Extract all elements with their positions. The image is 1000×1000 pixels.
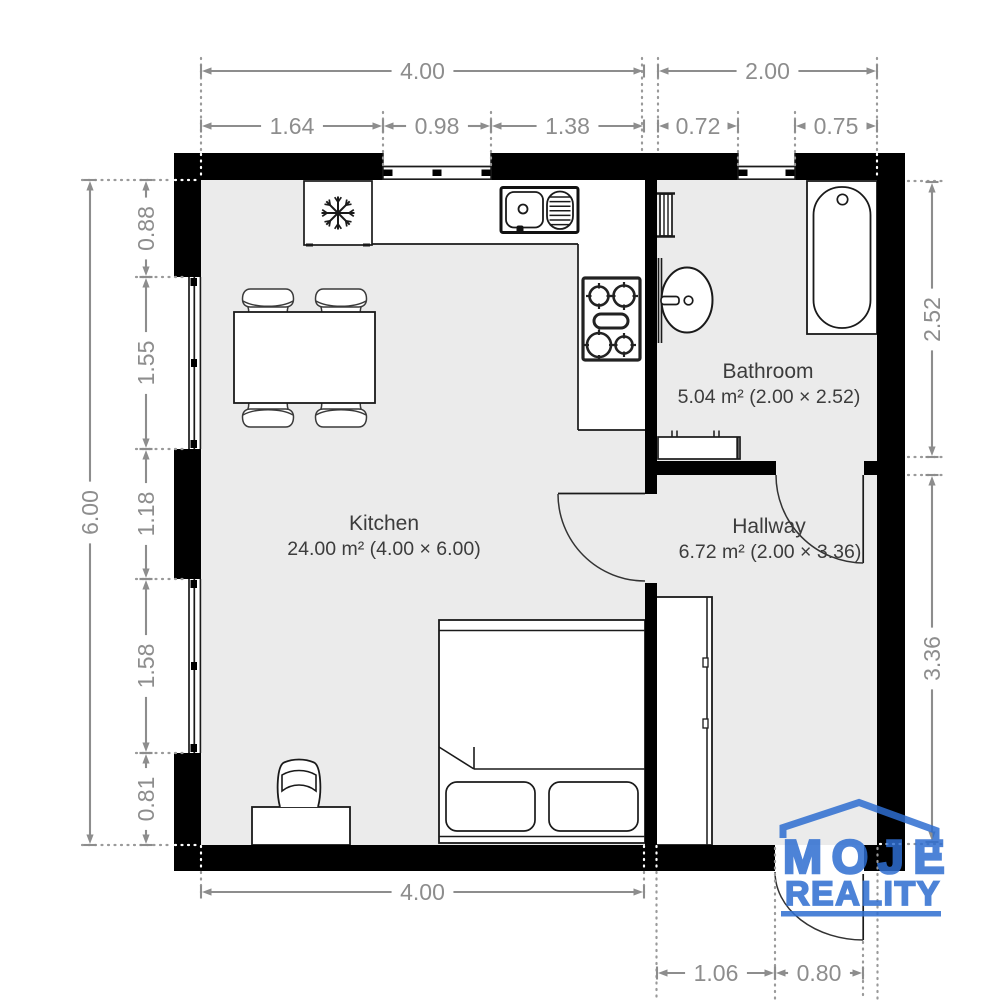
- svg-text:24.00 m² (4.00 × 6.00): 24.00 m² (4.00 × 6.00): [287, 538, 481, 560]
- svg-text:1.06: 1.06: [694, 960, 739, 986]
- svg-text:2.52: 2.52: [919, 297, 945, 342]
- svg-text:1.18: 1.18: [133, 492, 159, 537]
- svg-text:1.55: 1.55: [133, 341, 159, 386]
- svg-text:Hallway: Hallway: [732, 515, 806, 538]
- svg-text:0.81: 0.81: [133, 777, 159, 822]
- svg-text:4.00: 4.00: [400, 58, 445, 84]
- svg-text:0.88: 0.88: [133, 206, 159, 251]
- svg-text:5.04 m² (2.00 × 2.52): 5.04 m² (2.00 × 2.52): [678, 386, 861, 408]
- svg-text:3.36: 3.36: [919, 636, 945, 681]
- svg-text:1.64: 1.64: [270, 113, 315, 139]
- svg-text:4.00: 4.00: [400, 879, 445, 905]
- svg-text:1.58: 1.58: [133, 644, 159, 689]
- svg-text:0.80: 0.80: [797, 960, 842, 986]
- svg-text:6.72 m² (2.00 × 3.36): 6.72 m² (2.00 × 3.36): [679, 541, 862, 563]
- svg-text:Bathroom: Bathroom: [722, 360, 813, 383]
- svg-text:0.75: 0.75: [814, 113, 859, 139]
- svg-text:Kitchen: Kitchen: [349, 512, 419, 535]
- svg-text:1.38: 1.38: [545, 113, 590, 139]
- svg-text:6.00: 6.00: [77, 490, 103, 535]
- svg-text:0.98: 0.98: [415, 113, 460, 139]
- svg-text:2.00: 2.00: [745, 58, 790, 84]
- svg-text:0.72: 0.72: [676, 113, 721, 139]
- svg-text:REALITY: REALITY: [785, 875, 941, 913]
